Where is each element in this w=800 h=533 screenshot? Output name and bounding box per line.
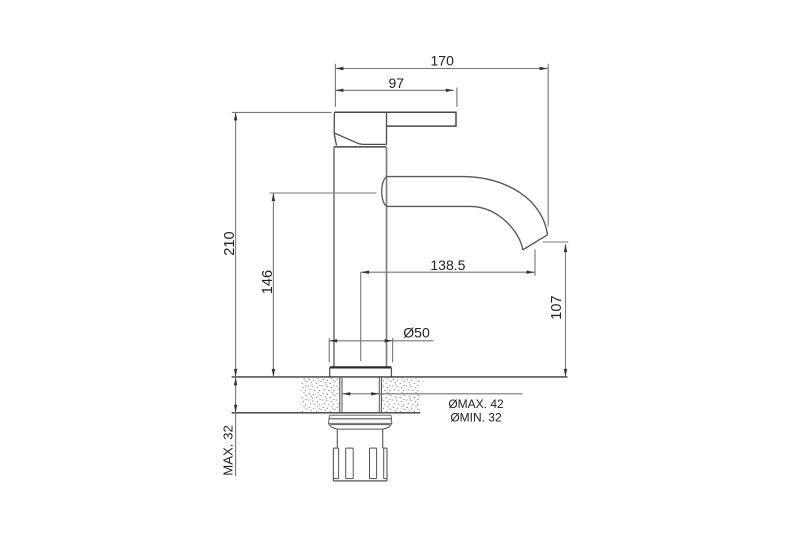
svg-text:97: 97 [389, 75, 405, 91]
svg-text:ØMIN. 32: ØMIN. 32 [450, 410, 502, 424]
svg-text:Ø50: Ø50 [403, 325, 430, 341]
svg-text:138.5: 138.5 [430, 257, 465, 273]
svg-text:146: 146 [260, 270, 276, 294]
svg-text:170: 170 [431, 53, 455, 69]
svg-text:107: 107 [549, 295, 565, 319]
svg-text:ØMAX. 42: ØMAX. 42 [448, 397, 504, 411]
svg-text:MAX. 32: MAX. 32 [220, 425, 235, 476]
svg-text:210: 210 [222, 231, 238, 255]
